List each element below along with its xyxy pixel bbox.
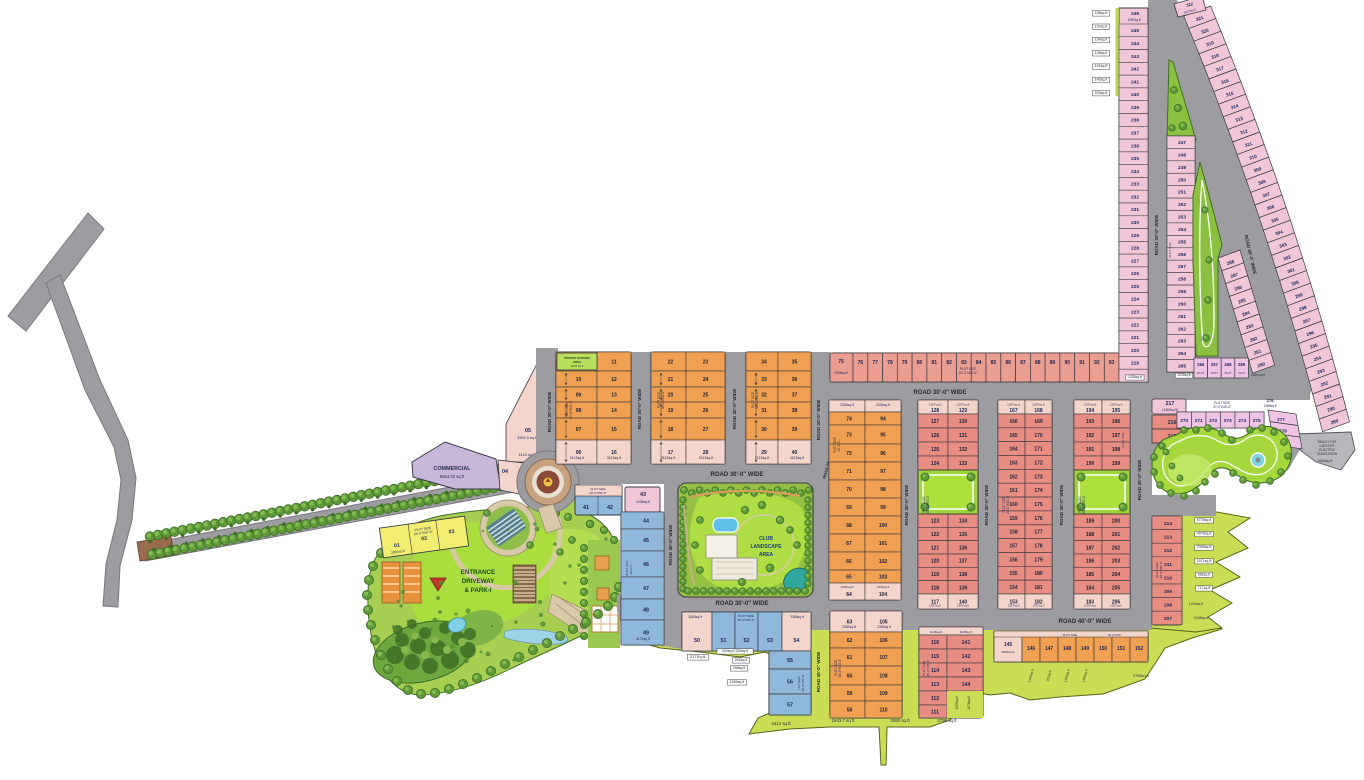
svg-text:87: 87 — [1020, 360, 1026, 366]
svg-text:2435sq.ft: 2435sq.ft — [636, 500, 650, 504]
svg-text:1295sq.ft: 1295sq.ft — [955, 696, 959, 709]
svg-text:976sq.ft: 976sq.ft — [1095, 91, 1108, 95]
svg-text:101: 101 — [879, 541, 888, 547]
svg-text:102: 102 — [879, 559, 888, 565]
svg-text:158: 158 — [1009, 530, 1018, 536]
svg-text:3113sq.ft: 3113sq.ft — [699, 456, 714, 460]
svg-text:ROAD 30'-0" WIDE: ROAD 30'-0" WIDE — [732, 389, 737, 430]
svg-text:43: 43 — [640, 492, 646, 498]
svg-text:245: 245 — [1131, 28, 1139, 34]
svg-text:2334sq.ft: 2334sq.ft — [877, 585, 890, 589]
svg-text:01: 01 — [394, 542, 401, 549]
svg-text:159: 159 — [1009, 516, 1018, 522]
svg-text:3363sq.ft: 3363sq.ft — [688, 615, 702, 619]
svg-text:18: 18 — [668, 427, 674, 433]
svg-text:265: 265 — [1178, 364, 1186, 370]
svg-text:2383sq.ft: 2383sq.ft — [1197, 545, 1211, 549]
svg-text:2334sq.ft: 2334sq.ft — [840, 403, 854, 407]
svg-text:33: 33 — [761, 377, 767, 383]
svg-text:235: 235 — [1131, 156, 1139, 162]
svg-text:1035sq.ft: 1035sq.ft — [1177, 373, 1190, 377]
svg-text:3060 sq.ft: 3060 sq.ft — [890, 718, 910, 723]
svg-text:3113sq.ft: 3113sq.ft — [755, 456, 770, 460]
svg-text:4076sq.ft: 4076sq.ft — [1197, 532, 1211, 536]
svg-text:133: 133 — [959, 461, 968, 467]
svg-text:39: 39 — [792, 427, 798, 433]
svg-text:41: 41 — [583, 505, 589, 511]
svg-text:213: 213 — [1164, 535, 1172, 541]
svg-text:232: 232 — [1131, 194, 1139, 200]
svg-text:2382sq.ft: 2382sq.ft — [877, 625, 891, 629]
svg-text:129: 129 — [959, 408, 968, 414]
svg-text:73: 73 — [846, 433, 852, 439]
svg-text:3368sq.ft: 3368sq.ft — [790, 615, 804, 619]
svg-text:79: 79 — [902, 360, 908, 366]
svg-text:1357sq.ft: 1357sq.ft — [1008, 604, 1020, 608]
svg-text:139: 139 — [959, 585, 968, 591]
svg-text:192: 192 — [1086, 433, 1095, 439]
svg-text:194: 194 — [1086, 408, 1095, 414]
svg-text:230: 230 — [1131, 220, 1139, 226]
svg-text:70: 70 — [846, 487, 852, 493]
svg-text:144: 144 — [962, 682, 971, 688]
svg-text:241: 241 — [1131, 79, 1139, 85]
svg-text:92: 92 — [1094, 360, 1100, 366]
svg-text:31: 31 — [761, 408, 767, 414]
svg-text:175: 175 — [1034, 502, 1043, 508]
svg-text:PLOT: PLOT — [1225, 371, 1232, 375]
svg-text:167: 167 — [1009, 408, 1018, 414]
svg-text:224: 224 — [1131, 297, 1139, 303]
svg-text:298sq.ft: 298sq.ft — [733, 666, 746, 670]
svg-text:2056sq.ft: 2056sq.ft — [834, 371, 847, 375]
svg-text:178: 178 — [1034, 544, 1043, 550]
svg-text:03: 03 — [448, 529, 455, 536]
svg-text:268: 268 — [1224, 362, 1232, 367]
svg-text:89: 89 — [1050, 360, 1056, 366]
svg-text:151: 151 — [1117, 646, 1126, 652]
svg-text:143: 143 — [962, 668, 971, 674]
svg-text:77: 77 — [872, 360, 878, 366]
svg-text:62: 62 — [847, 638, 853, 644]
svg-text:ROAD 30'-0" WIDE: ROAD 30'-0" WIDE — [711, 472, 764, 478]
svg-text:1643.7 sq ft: 1643.7 sq ft — [832, 718, 856, 723]
svg-text:32: 32 — [761, 393, 767, 399]
svg-text:110: 110 — [879, 708, 887, 714]
svg-text:22: 22 — [668, 360, 674, 366]
svg-text:166: 166 — [1009, 419, 1018, 425]
svg-text:147: 147 — [1045, 646, 1054, 652]
svg-text:2796 sq.ft: 2796 sq.ft — [937, 718, 957, 723]
svg-text:2334sq.ft: 2334sq.ft — [876, 403, 890, 407]
svg-text:1357sq.ft: 1357sq.ft — [957, 403, 970, 407]
svg-text:1357sq.ft: 1357sq.ft — [1032, 403, 1045, 407]
svg-text:188: 188 — [1086, 532, 1095, 538]
svg-text:1046sq.ft: 1046sq.ft — [960, 630, 973, 634]
svg-text:150: 150 — [1099, 646, 1108, 652]
svg-text:145: 145 — [1004, 642, 1013, 648]
svg-text:3993.9 sq.ft: 3993.9 sq.ft — [517, 436, 538, 440]
svg-text:201: 201 — [1112, 532, 1121, 538]
svg-text:20'-0"X50'-0": 20'-0"X50'-0" — [1082, 495, 1086, 513]
svg-text:46: 46 — [643, 562, 649, 568]
svg-text:ROAD 30'-0" WIDE: ROAD 30'-0" WIDE — [1154, 215, 1159, 256]
svg-text:2382sq.ft: 2382sq.ft — [842, 625, 856, 629]
svg-text:160: 160 — [1009, 502, 1018, 508]
svg-text:AREA: AREA — [759, 552, 774, 558]
svg-text:238: 238 — [1131, 118, 1139, 124]
svg-text:266: 266 — [1197, 362, 1205, 367]
svg-text:136: 136 — [959, 545, 968, 551]
svg-text:202: 202 — [1112, 545, 1121, 551]
svg-text:214: 214 — [1164, 521, 1172, 527]
svg-text:08: 08 — [576, 408, 582, 414]
svg-text:205: 205 — [1112, 585, 1121, 591]
svg-text:248: 248 — [1178, 152, 1186, 158]
svg-text:47: 47 — [643, 586, 649, 592]
svg-text:11: 11 — [611, 360, 617, 366]
svg-text:ROAD 30'-0" WIDE: ROAD 30'-0" WIDE — [1059, 485, 1064, 526]
svg-text:124: 124 — [931, 461, 940, 467]
svg-text:24: 24 — [703, 377, 709, 383]
svg-text:1035sq.ft: 1035sq.ft — [1128, 375, 1142, 379]
svg-text:246: 246 — [1131, 11, 1139, 17]
svg-text:88: 88 — [1035, 360, 1041, 366]
svg-text:DRIVEWAY: DRIVEWAY — [462, 578, 495, 585]
svg-text:26: 26 — [703, 408, 709, 414]
svg-text:30'-0"X50'-0": 30'-0"X50'-0" — [589, 491, 606, 495]
svg-text:72: 72 — [846, 451, 852, 457]
svg-text:20'-0"X50'-0": 20'-0"X50'-0" — [959, 371, 977, 375]
svg-text:190: 190 — [1086, 461, 1095, 467]
svg-text:1203sq.ft: 1203sq.ft — [1189, 602, 1203, 606]
svg-text:20'-0"X45'-0": 20'-0"X45'-0" — [1213, 405, 1231, 409]
svg-text:ROAD 30'-0" WIDE: ROAD 30'-0" WIDE — [816, 400, 821, 441]
svg-text:66: 66 — [846, 559, 852, 565]
svg-text:258: 258 — [1178, 277, 1186, 283]
svg-text:3113sq.ft: 3113sq.ft — [570, 456, 585, 460]
svg-text:123: 123 — [931, 519, 940, 525]
svg-text:210: 210 — [1164, 575, 1172, 581]
svg-text:260: 260 — [1178, 302, 1186, 308]
svg-text:119: 119 — [931, 572, 939, 578]
svg-text:85: 85 — [991, 360, 997, 366]
svg-text:38: 38 — [792, 408, 798, 414]
svg-text:111: 111 — [931, 710, 939, 716]
svg-text:68: 68 — [846, 523, 852, 529]
svg-text:20: 20 — [668, 393, 674, 399]
svg-text:269: 269 — [1238, 362, 1246, 367]
svg-text:55: 55 — [787, 658, 793, 664]
svg-text:14: 14 — [611, 408, 617, 414]
svg-text:54: 54 — [794, 638, 800, 644]
svg-text:112: 112 — [931, 696, 939, 702]
svg-text:251: 251 — [1178, 190, 1186, 196]
svg-text:264: 264 — [1178, 351, 1186, 357]
svg-text:156: 156 — [1009, 557, 1018, 563]
svg-text:20'-0"X50'-0": 20'-0"X50'-0" — [1006, 495, 1010, 513]
svg-text:42: 42 — [607, 505, 613, 511]
svg-text:75: 75 — [838, 359, 844, 365]
svg-text:23: 23 — [703, 360, 709, 366]
svg-text:130: 130 — [959, 419, 968, 425]
svg-text:1046sq.ft: 1046sq.ft — [930, 630, 943, 634]
svg-text:126: 126 — [931, 433, 940, 439]
svg-text:208: 208 — [1164, 603, 1172, 609]
svg-text:120: 120 — [931, 559, 940, 565]
svg-text:ROAD 30'-0" WIDE: ROAD 30'-0" WIDE — [904, 485, 909, 526]
svg-text:249: 249 — [1178, 165, 1186, 171]
svg-text:90: 90 — [1065, 360, 1071, 366]
svg-text:121: 121 — [931, 545, 940, 551]
svg-text:217Sq.ft.: 217Sq.ft. — [690, 654, 706, 659]
svg-text:99: 99 — [880, 505, 886, 511]
svg-text:247: 247 — [1178, 140, 1186, 146]
svg-text:185: 185 — [1086, 572, 1095, 578]
svg-text:156sq.ft: 156sq.ft — [1095, 11, 1108, 15]
svg-text:181: 181 — [1034, 585, 1043, 591]
svg-text:4654sq.ft: 4654sq.ft — [1318, 459, 1333, 463]
svg-text:COMMERCIAL: COMMERCIAL — [433, 466, 471, 472]
svg-text:PLOT: PLOT — [1197, 371, 1204, 375]
svg-text:ROAD 30'-0" WIDE: ROAD 30'-0" WIDE — [637, 389, 642, 430]
svg-text:CLUB: CLUB — [759, 536, 773, 542]
svg-text:1971sq.ft: 1971sq.ft — [1197, 559, 1211, 563]
svg-text:27: 27 — [703, 427, 709, 433]
svg-text:195: 195 — [1112, 408, 1121, 414]
svg-text:34: 34 — [761, 360, 767, 366]
svg-text:254: 254 — [1178, 227, 1186, 233]
svg-text:04: 04 — [502, 469, 508, 475]
svg-text:1357sq.ft: 1357sq.ft — [957, 604, 969, 608]
svg-text:162: 162 — [1009, 474, 1018, 480]
svg-text:64: 64 — [846, 592, 852, 598]
svg-text:52: 52 — [744, 638, 750, 644]
svg-text:83: 83 — [961, 360, 967, 366]
svg-text:209: 209 — [1164, 589, 1172, 595]
svg-text:227: 227 — [1131, 258, 1139, 264]
svg-text:116: 116 — [931, 640, 939, 646]
svg-text:09: 09 — [576, 393, 582, 399]
svg-text:49: 49 — [643, 631, 649, 637]
svg-text:5778sq.ft: 5778sq.ft — [1197, 518, 1211, 522]
svg-text:204: 204 — [1112, 572, 1121, 578]
svg-text:4412 sq.ft: 4412 sq.ft — [771, 721, 791, 726]
svg-text:8663.02 sq.ft: 8663.02 sq.ft — [440, 474, 465, 479]
svg-text:250: 250 — [1178, 177, 1186, 183]
svg-text:61: 61 — [847, 655, 853, 661]
svg-text:240: 240 — [1131, 92, 1139, 98]
svg-text:107: 107 — [879, 655, 888, 661]
svg-text:82: 82 — [946, 360, 952, 366]
svg-text:100: 100 — [879, 523, 888, 529]
svg-text:193: 193 — [1086, 419, 1095, 425]
svg-text:148: 148 — [1063, 646, 1072, 652]
svg-text:76: 76 — [858, 360, 864, 366]
svg-text:242: 242 — [1131, 67, 1139, 73]
svg-text:ROAD 30'-0" WIDE: ROAD 30'-0" WIDE — [716, 601, 769, 607]
svg-text:138sq.ft: 138sq.ft — [1095, 51, 1108, 55]
svg-text:172: 172 — [1034, 461, 1043, 467]
svg-text:191: 191 — [1086, 447, 1095, 453]
svg-text:84: 84 — [976, 360, 982, 366]
svg-text:48: 48 — [643, 608, 649, 614]
svg-text:211: 211 — [1164, 562, 1172, 568]
svg-text:1357sq.ft: 1357sq.ft — [929, 604, 941, 608]
svg-text:LANDSCAPE: LANDSCAPE — [750, 544, 782, 550]
svg-text:21: 21 — [668, 377, 674, 383]
svg-text:106: 106 — [879, 638, 888, 644]
svg-text:149: 149 — [1081, 646, 1090, 652]
svg-text:152: 152 — [1135, 646, 1144, 652]
svg-text:259: 259 — [1178, 289, 1186, 295]
svg-text:51: 51 — [721, 638, 727, 644]
svg-text:197: 197 — [1112, 433, 1121, 439]
svg-text:118: 118 — [931, 585, 939, 591]
svg-text:67: 67 — [846, 541, 852, 547]
svg-text:717sq.ft: 717sq.ft — [1198, 586, 1210, 590]
svg-text:1357sq.ft: 1357sq.ft — [1007, 403, 1020, 407]
svg-text:30'-0"X50'-0": 30'-0"X50'-0" — [661, 391, 665, 409]
svg-text:165: 165 — [1009, 433, 1018, 439]
svg-text:13: 13 — [611, 393, 617, 399]
svg-text:PLOT SIZE: PLOT SIZE — [1168, 242, 1172, 257]
svg-text:174: 174 — [1034, 488, 1043, 494]
svg-text:219: 219 — [1131, 361, 1139, 367]
svg-text:59: 59 — [847, 691, 853, 697]
svg-text:36: 36 — [792, 377, 798, 383]
svg-text:420sq.ft 525sq.ft: 420sq.ft 525sq.ft — [722, 649, 749, 653]
svg-text:115: 115 — [931, 654, 939, 660]
svg-text:253: 253 — [1178, 215, 1186, 221]
svg-text:184: 184 — [1086, 585, 1095, 591]
svg-text:207: 207 — [1164, 616, 1172, 622]
svg-text:216: 216 — [1168, 420, 1177, 426]
svg-text:53: 53 — [767, 638, 773, 644]
svg-text:1078sq.ft: 1078sq.ft — [967, 696, 971, 709]
svg-text:239: 239 — [1131, 105, 1139, 111]
svg-text:179: 179 — [1034, 557, 1043, 563]
svg-text:57: 57 — [787, 703, 793, 709]
svg-text:234: 234 — [1131, 169, 1139, 175]
svg-text:122: 122 — [931, 532, 940, 538]
svg-text:ROAD 30'-0" WIDE: ROAD 30'-0" WIDE — [1137, 460, 1142, 501]
svg-text:69: 69 — [846, 505, 852, 511]
svg-text:ROAD 30'-0" WIDE: ROAD 30'-0" WIDE — [547, 392, 552, 433]
svg-text:ROAD 30'-0" WIDE: ROAD 30'-0" WIDE — [914, 390, 967, 396]
svg-text:ROAD 40'-0" WIDE: ROAD 40'-0" WIDE — [1059, 619, 1112, 625]
svg-text:ROAD 30'-0" WIDE: ROAD 30'-0" WIDE — [984, 485, 989, 526]
svg-text:2756sq.ft: 2756sq.ft — [1133, 674, 1150, 678]
svg-text:196: 196 — [1112, 419, 1121, 425]
svg-text:65: 65 — [846, 575, 852, 581]
svg-text:74: 74 — [846, 417, 852, 423]
svg-text:256: 256 — [1178, 252, 1186, 258]
svg-text:20'-0"X50'-0": 20'-0"X50'-0" — [926, 495, 930, 513]
svg-text:142: 142 — [962, 654, 971, 660]
svg-text:ROAD 30'-0" WIDE: ROAD 30'-0" WIDE — [668, 525, 673, 566]
svg-text:161: 161 — [1009, 488, 1018, 494]
svg-text:152sq.ft: 152sq.ft — [1095, 24, 1108, 28]
svg-text:1265sq.ft: 1265sq.ft — [730, 680, 745, 684]
svg-text:96: 96 — [880, 451, 886, 457]
svg-text:02: 02 — [421, 536, 428, 543]
svg-text:20'-0"X50'-0": 20'-0"X50'-0" — [1159, 561, 1163, 578]
svg-text:231: 231 — [1131, 207, 1139, 213]
svg-text:SUBSTATION: SUBSTATION — [1317, 452, 1338, 456]
svg-text:1357sq.ft: 1357sq.ft — [1110, 403, 1123, 407]
svg-text:2334sq.ft: 2334sq.ft — [841, 585, 854, 589]
svg-text:05: 05 — [525, 428, 531, 434]
svg-text:169: 169 — [1034, 419, 1043, 425]
svg-text:58: 58 — [847, 708, 853, 714]
svg-text:154: 154 — [1009, 585, 1018, 591]
svg-text:180: 180 — [1034, 571, 1043, 577]
svg-text:50: 50 — [694, 638, 700, 644]
svg-text:3113sq.ft: 3113sq.ft — [661, 456, 676, 460]
svg-text:221: 221 — [1131, 335, 1139, 341]
svg-text:1357sq.ft: 1357sq.ft — [1033, 604, 1045, 608]
svg-text:12: 12 — [611, 377, 617, 383]
svg-text:97: 97 — [880, 469, 886, 475]
svg-text:PLOT: PLOT — [1211, 371, 1218, 375]
svg-text:114: 114 — [931, 668, 939, 674]
svg-text:30'-0"X...: 30'-0"X... — [837, 438, 841, 451]
svg-text:263: 263 — [1178, 339, 1186, 345]
svg-text:261: 261 — [1178, 314, 1186, 320]
svg-text:212: 212 — [1164, 548, 1172, 554]
svg-text:257: 257 — [1178, 264, 1186, 270]
svg-text:270: 270 — [1180, 418, 1188, 424]
svg-text:233: 233 — [1131, 182, 1139, 188]
svg-text:198: 198 — [1112, 447, 1121, 453]
svg-text:45: 45 — [643, 538, 649, 544]
svg-text:PLOT: PLOT — [1238, 371, 1245, 375]
svg-text:173: 173 — [1034, 474, 1043, 480]
svg-text:19: 19 — [668, 408, 674, 414]
svg-text:108: 108 — [879, 674, 888, 680]
svg-text:138: 138 — [959, 572, 968, 578]
svg-text:1357sq.ft: 1357sq.ft — [1084, 403, 1097, 407]
svg-text:157: 157 — [1009, 544, 1018, 550]
svg-text:176: 176 — [1034, 516, 1043, 522]
svg-text:145sq.ft: 145sq.ft — [1095, 78, 1108, 82]
svg-text:3113sq.ft: 3113sq.ft — [607, 456, 622, 460]
svg-text:170: 170 — [1034, 433, 1043, 439]
svg-text:(1482sq.ft): (1482sq.ft) — [1162, 408, 1178, 412]
svg-text:60: 60 — [847, 674, 853, 680]
svg-text:217: 217 — [1166, 401, 1175, 407]
svg-text:187: 187 — [1086, 545, 1095, 551]
svg-text:15: 15 — [611, 427, 617, 433]
svg-text:20'-0"X60..: 20'-0"X60.. — [1108, 633, 1122, 637]
svg-text:PLOT SIZE: PLOT SIZE — [1063, 633, 1078, 637]
svg-text:4170sq.ft: 4170sq.ft — [636, 637, 650, 641]
svg-text:131: 131 — [959, 433, 968, 439]
svg-text:264sq.ft: 264sq.ft — [735, 658, 748, 662]
svg-text:171: 171 — [1034, 447, 1043, 453]
svg-text:ROAD 30'-0" WIDE: ROAD 30'-0" WIDE — [816, 652, 821, 693]
svg-text:273: 273 — [1224, 418, 1232, 424]
svg-text:223: 223 — [1131, 310, 1139, 316]
svg-text:40'-0"X30'-0": 40'-0"X30'-0" — [737, 618, 754, 622]
svg-text:30'-0"X40'-0": 30'-0"X40'-0" — [755, 391, 759, 409]
svg-text:1469 sq.ft: 1469 sq.ft — [1251, 373, 1265, 377]
svg-text:225: 225 — [1131, 284, 1139, 290]
svg-text:128: 128 — [931, 408, 940, 414]
svg-text:104: 104 — [879, 592, 888, 598]
svg-text:1357sq.ft: 1357sq.ft — [1084, 604, 1096, 608]
